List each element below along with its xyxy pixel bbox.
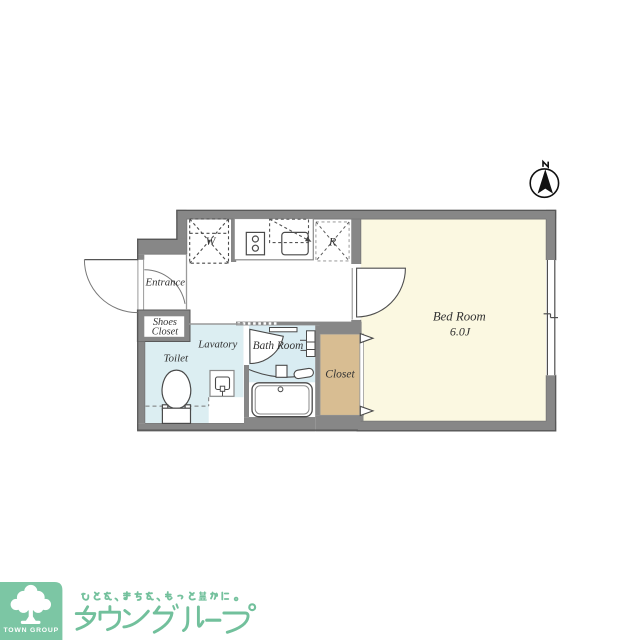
svg-text:Lavatory: Lavatory [197,339,237,351]
svg-text:Entrance: Entrance [145,276,186,288]
svg-text:R: R [328,235,337,249]
svg-text:6.0J: 6.0J [450,324,471,338]
svg-text:W: W [206,236,217,248]
svg-text:Closet: Closet [325,369,355,381]
svg-text:Bath Room: Bath Room [253,340,304,352]
svg-text:Toilet: Toilet [163,353,189,365]
svg-text:TOWN GROUP: TOWN GROUP [3,627,58,634]
svg-text:Closet: Closet [152,326,179,337]
svg-text:Bed Room: Bed Room [433,309,486,323]
